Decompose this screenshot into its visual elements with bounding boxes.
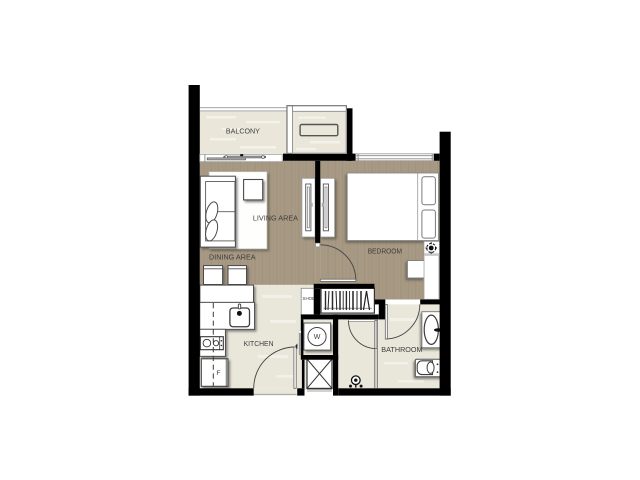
svg-text:SHOE: SHOE [303,296,316,302]
svg-text:BALCONY: BALCONY [226,127,260,136]
svg-text:BEDROOM: BEDROOM [368,246,402,255]
svg-text:KITCHEN: KITCHEN [244,339,274,348]
svg-text:BATHROOM: BATHROOM [381,345,422,354]
svg-text:DINING AREA: DINING AREA [209,252,256,261]
svg-text:LIVING AREA: LIVING AREA [253,213,298,222]
svg-text:W: W [314,334,321,341]
svg-text:F: F [216,370,220,377]
